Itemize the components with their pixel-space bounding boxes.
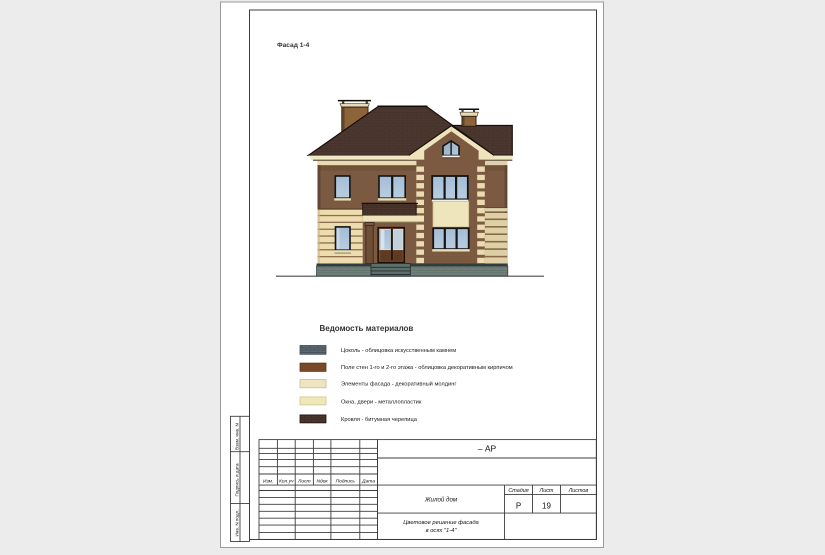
- svg-text:Фасад 1-4: Фасад 1-4: [277, 42, 310, 49]
- svg-text:Листов: Листов: [568, 488, 589, 494]
- svg-text:Взам. инв. N: Взам. инв. N: [235, 423, 240, 450]
- svg-text:Лист: Лист: [297, 478, 311, 484]
- svg-text:Инв. N подл.: Инв. N подл.: [235, 509, 240, 536]
- svg-text:Ведомость материалов: Ведомость материалов: [320, 324, 414, 333]
- svg-text:Окна, двери - металлопластик: Окна, двери - металлопластик: [341, 399, 422, 405]
- svg-text:Элементы фасада - декоративный: Элементы фасада - декоративный молдинг: [341, 381, 456, 388]
- svg-text:Цветовое решение фасада: Цветовое решение фасада: [403, 520, 479, 526]
- svg-text:Подпись и дата: Подпись и дата: [235, 463, 240, 496]
- svg-text:Изм.: Изм.: [263, 478, 273, 484]
- svg-text:Кол.уч: Кол.уч: [279, 478, 294, 484]
- svg-text:в осях "1-4": в осях "1-4": [426, 528, 458, 534]
- svg-text:Цоколь - облицовка искусственн: Цоколь - облицовка искусственным камнем: [341, 348, 456, 354]
- svg-text:Р: Р: [516, 502, 521, 511]
- svg-text:Дата: Дата: [361, 478, 375, 484]
- svg-text:Стадия: Стадия: [508, 488, 528, 494]
- svg-text:Nдок: Nдок: [316, 478, 328, 484]
- svg-text:– АР: – АР: [478, 444, 497, 454]
- svg-text:Поле стен 1-го и 2-го этажа -: Поле стен 1-го и 2-го этажа - облицовка …: [341, 365, 513, 371]
- svg-text:Жилой дом: Жилой дом: [424, 497, 458, 504]
- svg-text:19: 19: [542, 502, 551, 511]
- svg-text:Лист: Лист: [539, 488, 554, 494]
- svg-text:Подпись: Подпись: [336, 478, 356, 484]
- svg-text:Кровля - битумная черепица: Кровля - битумная черепица: [341, 417, 418, 423]
